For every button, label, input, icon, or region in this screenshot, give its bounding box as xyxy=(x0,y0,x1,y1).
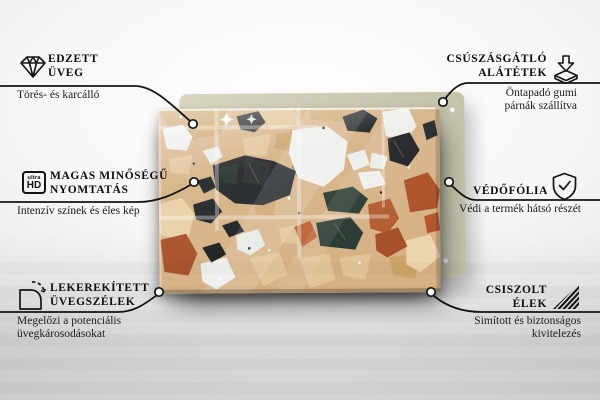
terrazzo-glass-panel xyxy=(158,107,440,294)
callout-subtitle: Megelőzi a potenciális üvegkárosodásokat xyxy=(17,315,121,341)
rounded-corner-icon xyxy=(16,279,47,312)
callout-title: LEKEREKÍTETT ÜVEGSZÉLEK xyxy=(50,281,149,309)
shield-check-icon xyxy=(551,172,578,201)
mounting-hole xyxy=(448,106,456,114)
callout-title: VÉDŐFÓLIA xyxy=(473,184,548,198)
slip-pad-arrow-icon xyxy=(552,54,580,84)
ultra-hd-icon: ultra HD xyxy=(22,171,46,194)
callout-title: CSÚSZÁSGÁTLÓ ALÁTÉTEK xyxy=(446,52,547,80)
callout-title: EDZETT ÜVEG xyxy=(48,52,98,80)
product-infographic: EDZETT ÜVEG Törés- és karcálló CSÚSZÁSGÁ… xyxy=(0,0,600,400)
callout-subtitle: Törés- és karcálló xyxy=(17,89,99,102)
mounting-hole xyxy=(442,257,450,265)
terrazzo-pattern xyxy=(158,107,440,294)
diamond-icon xyxy=(19,55,47,79)
callout-subtitle: Védi a termék hátsó részét xyxy=(459,203,581,216)
callout-subtitle: Simított és biztonságos kivitelezés xyxy=(474,315,581,341)
callout-title: CSISZOLT ÉLEK xyxy=(486,283,547,311)
callout-title: MAGAS MINŐSÉGŰ NYOMTATÁS xyxy=(50,169,168,197)
callout-subtitle: Öntapadó gumi párnák szállítva xyxy=(505,87,577,113)
diagonal-hatch-icon xyxy=(551,283,580,310)
callout-subtitle: Intenzív színek és éles kép xyxy=(17,205,140,218)
